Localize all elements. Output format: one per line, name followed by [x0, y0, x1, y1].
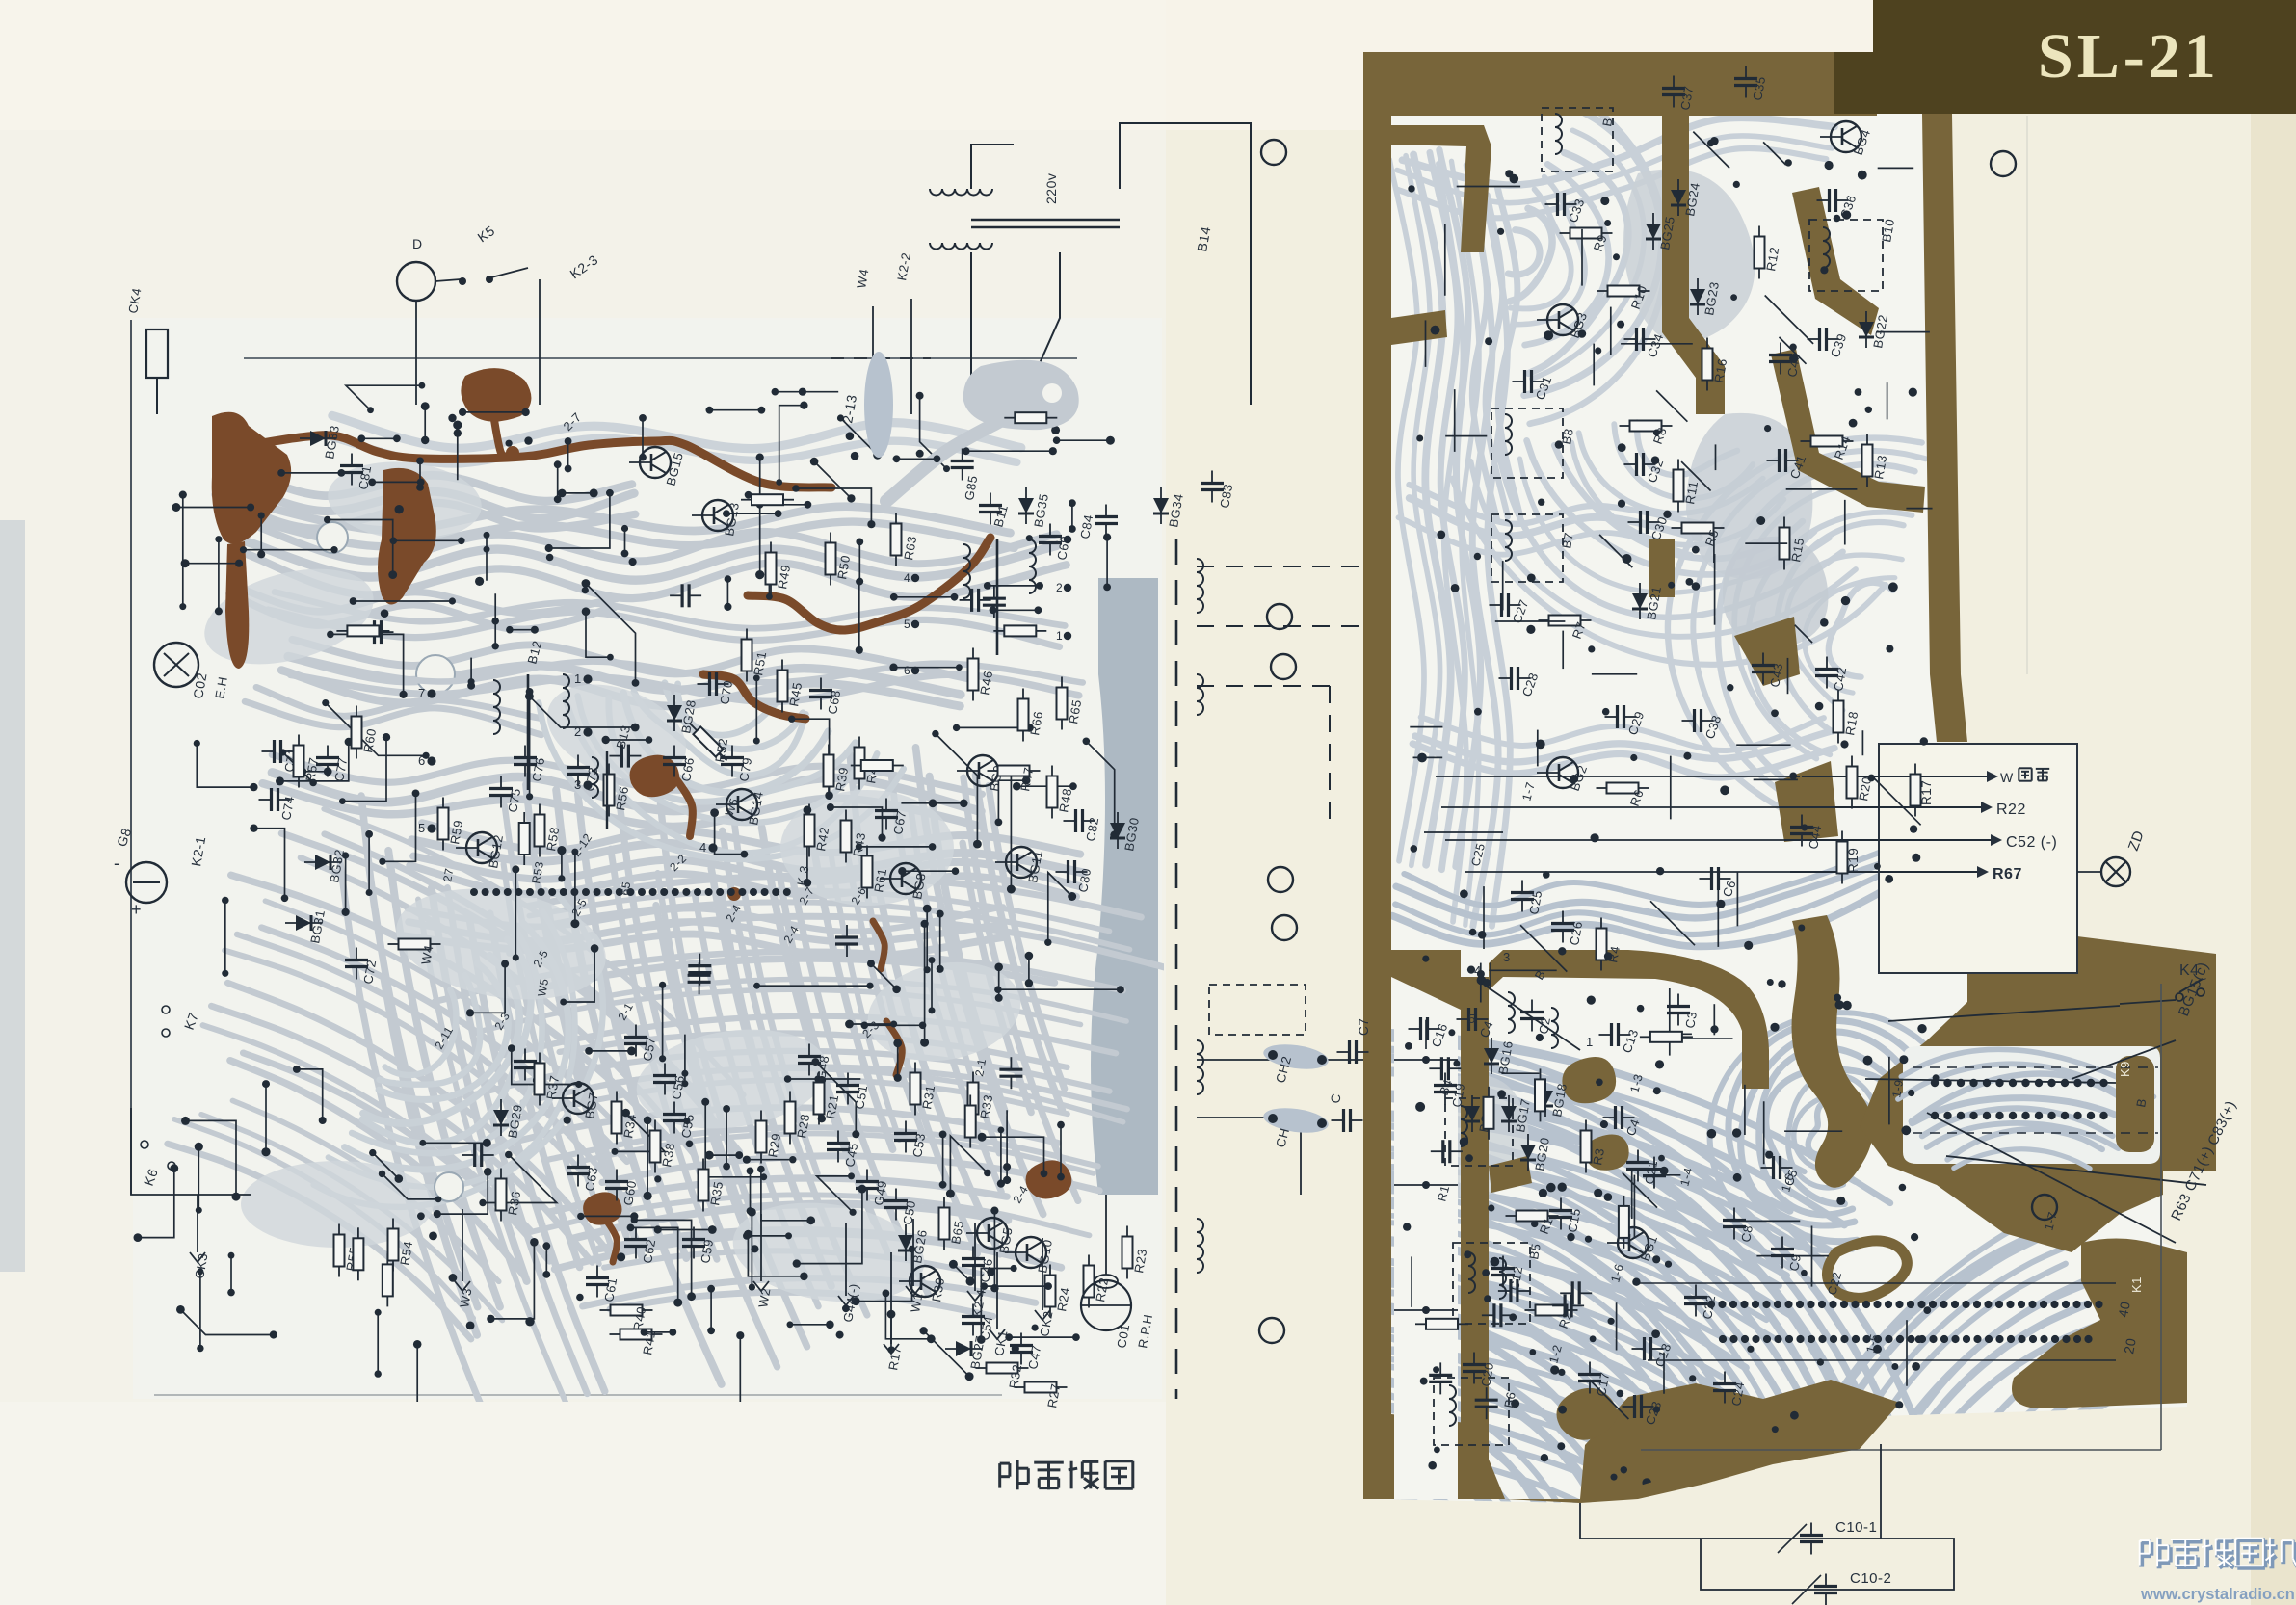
- svg-text:4: 4: [904, 571, 910, 585]
- svg-text:27: 27: [440, 867, 456, 883]
- svg-text:SL-21: SL-21: [2038, 21, 2220, 92]
- svg-text:1: 1: [574, 671, 582, 686]
- svg-text:R3: R3: [1590, 1147, 1607, 1167]
- svg-text:B7: B7: [1559, 531, 1576, 549]
- svg-text:6: 6: [418, 753, 426, 768]
- svg-text:C10-1: C10-1: [1835, 1519, 1877, 1536]
- svg-text:5: 5: [904, 618, 910, 631]
- svg-text:40: 40: [2115, 1300, 2133, 1318]
- svg-text:5: 5: [418, 821, 426, 835]
- svg-text:3: 3: [1503, 950, 1511, 964]
- svg-text:C10-2: C10-2: [1850, 1570, 1891, 1587]
- svg-text:5: 5: [1468, 1012, 1476, 1026]
- svg-text:C3: C3: [1682, 1011, 1700, 1030]
- svg-text:6: 6: [904, 664, 910, 677]
- svg-text:3: 3: [1056, 533, 1063, 546]
- svg-text:2: 2: [1056, 581, 1063, 594]
- svg-text:W: W: [2000, 770, 2014, 785]
- svg-text:www.crystalradio.cn: www.crystalradio.cn: [2140, 1586, 2295, 1603]
- svg-text:D: D: [412, 236, 423, 251]
- svg-text:1: 1: [1586, 1035, 1594, 1049]
- svg-text:C52 (-): C52 (-): [2006, 834, 2057, 851]
- svg-text:2: 2: [574, 724, 582, 739]
- svg-text:R22: R22: [1996, 802, 2026, 818]
- svg-text:-: -: [114, 854, 120, 873]
- svg-text:1: 1: [1056, 629, 1063, 643]
- svg-text:B5: B5: [1526, 1242, 1544, 1260]
- svg-text:C8: C8: [1738, 1224, 1755, 1244]
- svg-text:R17: R17: [1919, 780, 1934, 805]
- svg-text:C7: C7: [1357, 1018, 1371, 1036]
- svg-text:4: 4: [699, 840, 707, 855]
- svg-text:220v: 220v: [1043, 173, 1059, 204]
- svg-text:R67: R67: [1993, 866, 2022, 882]
- svg-text:3: 3: [574, 777, 582, 792]
- svg-text:K1: K1: [2129, 1276, 2144, 1293]
- svg-text:R19: R19: [1846, 848, 1861, 873]
- svg-text:+: +: [131, 900, 142, 919]
- svg-text:20: 20: [2121, 1336, 2139, 1355]
- svg-text:65: 65: [618, 881, 633, 897]
- svg-text:K9: K9: [2118, 1061, 2132, 1077]
- svg-text:7: 7: [418, 686, 426, 700]
